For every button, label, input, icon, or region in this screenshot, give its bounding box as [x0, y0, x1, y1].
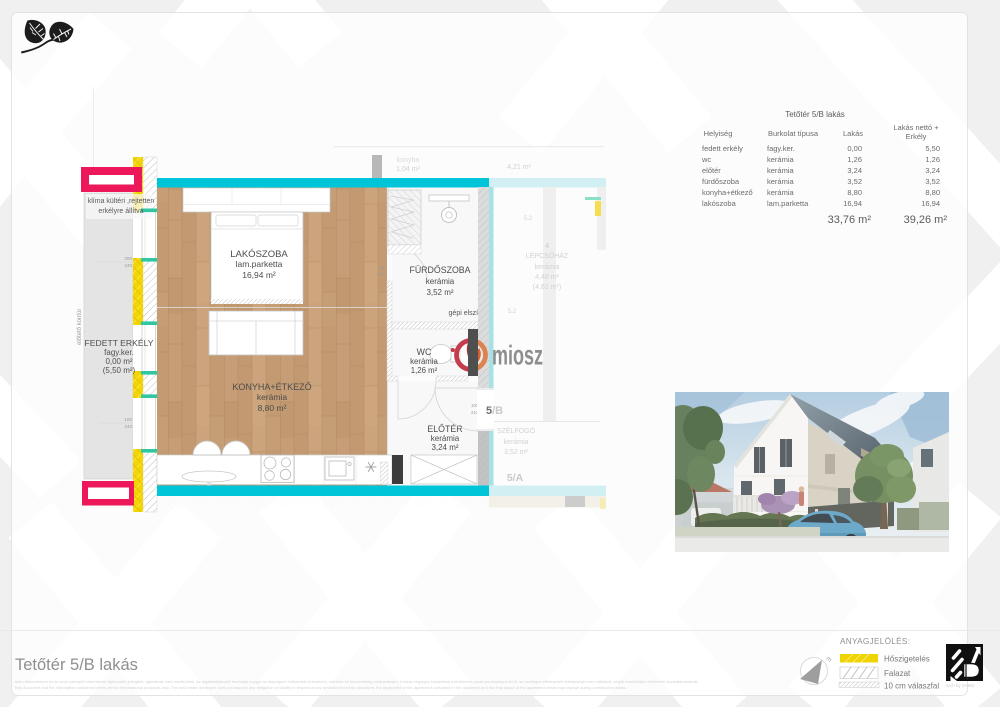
- svg-text:240: 240: [124, 424, 132, 429]
- svg-text:kerámia: kerámia: [535, 264, 560, 271]
- svg-text:4,48 m²: 4,48 m²: [535, 274, 559, 281]
- svg-text:FEDETT ERKÉLY: FEDETT ERKÉLY: [85, 338, 154, 348]
- svg-text:miosz: miosz: [492, 340, 543, 371]
- svg-text:1,04 m²: 1,04 m²: [396, 166, 420, 173]
- svg-text:lam.parketta: lam.parketta: [767, 199, 809, 208]
- svg-text:Lakás nettó +: Lakás nettó +: [893, 123, 939, 132]
- svg-text:fagy.ker.: fagy.ker.: [104, 348, 134, 357]
- svg-text:Burkolat típusa: Burkolat típusa: [768, 129, 819, 138]
- svg-text:5/B: 5/B: [486, 405, 503, 417]
- svg-text:240: 240: [124, 263, 132, 268]
- svg-text:1,26: 1,26: [925, 155, 940, 164]
- svg-text:Tetőtér 5/B lakás: Tetőtér 5/B lakás: [15, 656, 138, 674]
- svg-text:3,52: 3,52: [847, 177, 862, 186]
- svg-text:75: 75: [379, 266, 384, 271]
- svg-text:LÉPCSŐHÁZ: LÉPCSŐHÁZ: [526, 251, 569, 260]
- svg-text:100: 100: [124, 417, 132, 422]
- svg-text:WC: WC: [417, 347, 432, 357]
- svg-text:fagy.ker.: fagy.ker.: [767, 144, 795, 153]
- svg-text:FÜRDŐSZOBA: FÜRDŐSZOBA: [409, 265, 470, 275]
- svg-text:ANYAGJELÖLÉS:: ANYAGJELÖLÉS:: [840, 636, 910, 646]
- svg-text:kerámia: kerámia: [257, 392, 288, 402]
- svg-text:kerámia: kerámia: [767, 155, 795, 164]
- svg-text:3,52 m²: 3,52 m²: [426, 288, 453, 297]
- svg-text:Hőszigetelés: Hőszigetelés: [884, 655, 930, 664]
- svg-text:konyha: konyha: [397, 157, 420, 164]
- svg-text:5/A: 5/A: [507, 472, 524, 484]
- svg-text:Tetőtér 5/B lakás: Tetőtér 5/B lakás: [785, 110, 845, 119]
- svg-text:4,21 m²: 4,21 m²: [507, 164, 531, 171]
- svg-text:Falazat: Falazat: [884, 669, 911, 678]
- svg-text:wc: wc: [701, 155, 711, 164]
- svg-text:8,80: 8,80: [847, 188, 862, 197]
- svg-text:10 cm válaszfal: 10 cm válaszfal: [884, 682, 939, 691]
- svg-text:33,76 m²: 33,76 m²: [828, 214, 872, 226]
- svg-text:16,94: 16,94: [843, 199, 862, 208]
- svg-text:KONYHA+ÉTKEZŐ: KONYHA+ÉTKEZŐ: [232, 382, 311, 392]
- svg-text:arch by ZAMD: arch by ZAMD: [946, 683, 976, 688]
- svg-text:klíma kültéri ,rejtetten: klíma kültéri ,rejtetten: [88, 198, 155, 205]
- svg-text:0,00 m²: 0,00 m²: [105, 357, 132, 366]
- svg-text:kerámia: kerámia: [767, 166, 795, 175]
- svg-text:5,2: 5,2: [508, 309, 517, 315]
- svg-text:Erkély: Erkély: [906, 132, 927, 141]
- svg-text:erkélyre állítva: erkélyre állítva: [98, 208, 143, 215]
- svg-text:előtér: előtér: [702, 166, 721, 175]
- svg-text:(4,61 m²): (4,61 m²): [533, 284, 561, 291]
- svg-text:1,26 m²: 1,26 m²: [411, 366, 438, 375]
- svg-text:kerámia: kerámia: [431, 434, 460, 443]
- svg-text:3,24: 3,24: [925, 166, 940, 175]
- svg-text:lam.parketta: lam.parketta: [236, 259, 283, 269]
- svg-text:fedett erkély: fedett erkély: [702, 144, 743, 153]
- svg-text:3,24 m²: 3,24 m²: [431, 443, 458, 452]
- svg-text:Helyiség: Helyiség: [704, 129, 733, 138]
- svg-text:0,00: 0,00: [847, 144, 862, 153]
- svg-text:előtető kontúr: előtető kontúr: [77, 309, 83, 345]
- svg-text:This document and the informat: This document and the information contai…: [14, 685, 627, 690]
- svg-text:kerámia: kerámia: [410, 357, 438, 366]
- svg-text:210: 210: [377, 272, 385, 277]
- svg-text:fürdőszoba: fürdőszoba: [702, 177, 740, 186]
- svg-text:39,26 m²: 39,26 m²: [904, 214, 948, 226]
- svg-text:1,26: 1,26: [847, 155, 862, 164]
- svg-text:5,50: 5,50: [925, 144, 940, 153]
- svg-text:5,2: 5,2: [524, 216, 533, 222]
- svg-text:16,94: 16,94: [921, 199, 940, 208]
- svg-text:16,94 m²: 16,94 m²: [242, 270, 276, 280]
- svg-text:kerámia: kerámia: [426, 277, 455, 286]
- svg-text:kerámia: kerámia: [504, 439, 529, 446]
- svg-text:3,52 m²: 3,52 m²: [504, 449, 528, 456]
- svg-text:Lakás: Lakás: [843, 129, 863, 138]
- svg-text:lakószoba: lakószoba: [702, 199, 737, 208]
- svg-text:kerámia: kerámia: [767, 188, 795, 197]
- svg-text:3,24: 3,24: [847, 166, 862, 175]
- svg-text:8,80: 8,80: [925, 188, 940, 197]
- svg-text:8,80 m²: 8,80 m²: [258, 403, 287, 413]
- svg-text:SZÉLFOGÓ: SZÉLFOGÓ: [497, 426, 536, 435]
- svg-text:konyha+étkező: konyha+étkező: [702, 188, 753, 197]
- svg-text:3,52: 3,52: [925, 177, 940, 186]
- svg-text:200: 200: [124, 256, 132, 261]
- svg-text:(5,50 m²): (5,50 m²): [103, 366, 136, 375]
- svg-text:Jelen dokumentum és az azon sz: Jelen dokumentum és az azon szereplő inf…: [14, 679, 698, 684]
- svg-text:kerámia: kerámia: [767, 177, 795, 186]
